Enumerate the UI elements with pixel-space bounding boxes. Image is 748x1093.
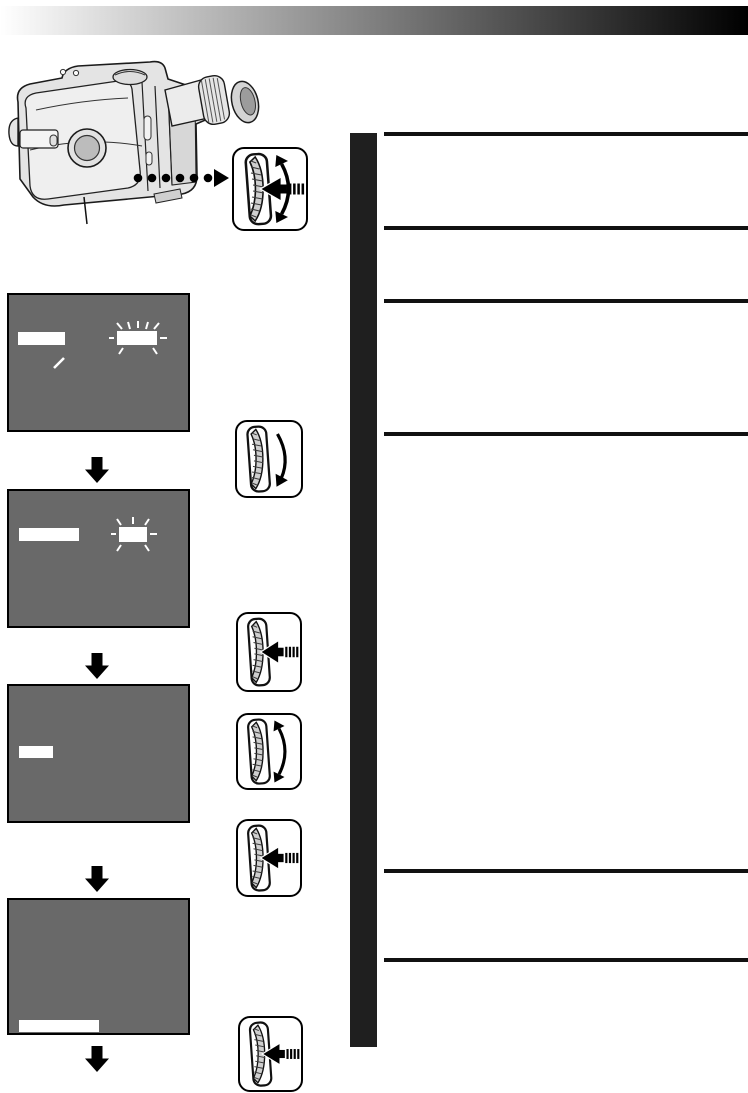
header-gradient-bar (0, 6, 748, 35)
display-screen-2 (7, 489, 190, 628)
camcorder-body (9, 62, 210, 206)
indicator-bar (19, 528, 79, 541)
flow-arrow-down (85, 457, 109, 483)
display-screen-1 (7, 293, 190, 432)
dial-rotate-down-icon (235, 420, 303, 498)
dial-press-icon (236, 819, 302, 897)
dial-press-icon (238, 1016, 303, 1092)
text-row-rule (384, 299, 748, 303)
indicator-bar (19, 1020, 99, 1032)
leader-arrowhead (214, 169, 229, 187)
camcorder-eyepiece-window (20, 130, 58, 148)
camcorder-lens (68, 129, 106, 167)
flow-arrow-down (85, 866, 109, 892)
text-row-rule (384, 226, 748, 230)
indicator-bar (19, 746, 53, 758)
text-row-rule (384, 432, 748, 436)
display-screen-4 (7, 898, 190, 1035)
text-row-rule (384, 958, 748, 962)
dial-rotate-and-press-icon (232, 147, 308, 231)
slash-indicator (52, 356, 66, 370)
blinking-indicator (109, 321, 173, 357)
dial-press-icon (236, 612, 302, 692)
text-row-rule (384, 869, 748, 873)
manual-page (0, 0, 748, 1093)
indicator-bar (18, 332, 65, 345)
display-screen-3 (7, 684, 190, 823)
section-sidebar-bar (350, 133, 377, 1047)
dial-rotate-icon (236, 713, 302, 790)
blinking-indicator (111, 517, 167, 553)
flow-arrow-down (85, 1046, 109, 1072)
camcorder-viewfinder (165, 74, 263, 126)
flow-arrow-down (85, 653, 109, 679)
text-row-rule (384, 132, 748, 136)
